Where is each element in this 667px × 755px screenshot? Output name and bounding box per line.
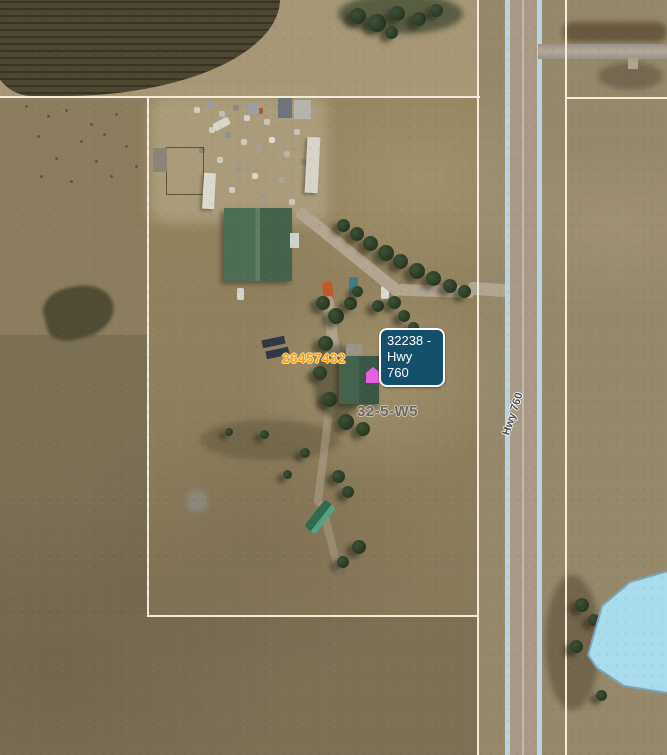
boundary-horizontal-west [0, 96, 480, 98]
tree [372, 300, 384, 312]
green-shop-building [224, 208, 292, 281]
white-trailer-center [202, 173, 216, 210]
quarter-section-label: 32-5-W5 [357, 403, 418, 420]
address-callout[interactable]: 32238 - Hwy 760 [379, 328, 445, 387]
tree [300, 448, 310, 458]
farmyard-junk-scatter [190, 100, 194, 104]
tree [398, 310, 410, 322]
tree [337, 219, 350, 232]
white-car-west [237, 288, 244, 300]
hedgerow-top-right [563, 22, 667, 42]
highway-stripe-left [505, 0, 510, 755]
crossroad-driveway-stub [628, 58, 638, 69]
highway-stripe-right [537, 0, 542, 755]
tree [225, 428, 233, 436]
tree [352, 540, 366, 554]
tree [393, 254, 408, 269]
crossroad-top-right [538, 44, 667, 59]
bottom-strip-field [0, 614, 480, 755]
highway-centerline [522, 0, 524, 755]
tree [350, 8, 366, 24]
tree [426, 271, 441, 286]
tree [328, 308, 344, 324]
gray-shed [153, 148, 167, 172]
small-shed [248, 103, 259, 114]
white-shed-top [294, 100, 311, 119]
tree [332, 470, 345, 483]
tree [337, 556, 349, 568]
junk-pile-south [186, 489, 208, 513]
tree [316, 296, 330, 310]
shop-annex [290, 233, 299, 248]
tree [368, 14, 386, 32]
tree [344, 297, 357, 310]
boundary-vertical-center [477, 0, 479, 755]
corral-pen [166, 147, 204, 195]
tree [283, 470, 292, 479]
boundary-vertical-east [565, 0, 567, 755]
tree [388, 296, 401, 309]
map-viewport[interactable]: 26457432 32-5-W5 Hwy 760 32238 - Hwy 760 [0, 0, 667, 755]
tree [356, 422, 370, 436]
parcel-number-label: 26457432 [282, 351, 346, 366]
boundary-vertical-west [147, 96, 149, 617]
tree [313, 366, 327, 380]
water-body-polygon [580, 560, 667, 700]
tree [430, 4, 443, 17]
tree [350, 227, 364, 241]
boundary-horizontal-east [566, 97, 667, 99]
tree [409, 263, 425, 279]
dark-shed [278, 98, 292, 118]
tree [260, 430, 269, 439]
tree [338, 414, 354, 430]
boundary-horizontal-bottom [147, 615, 479, 617]
tree [378, 245, 394, 261]
tree [390, 6, 405, 21]
tree [318, 336, 333, 351]
left-field-specks [25, 105, 28, 108]
address-callout-line2: Hwy 760 [387, 349, 437, 381]
tree [322, 392, 337, 407]
tree [352, 286, 363, 297]
tree [443, 279, 457, 293]
tree [412, 12, 426, 26]
address-callout-line1: 32238 - [387, 333, 437, 349]
tree [342, 486, 354, 498]
tree [385, 26, 398, 39]
tree [458, 285, 471, 298]
tree [363, 236, 378, 251]
